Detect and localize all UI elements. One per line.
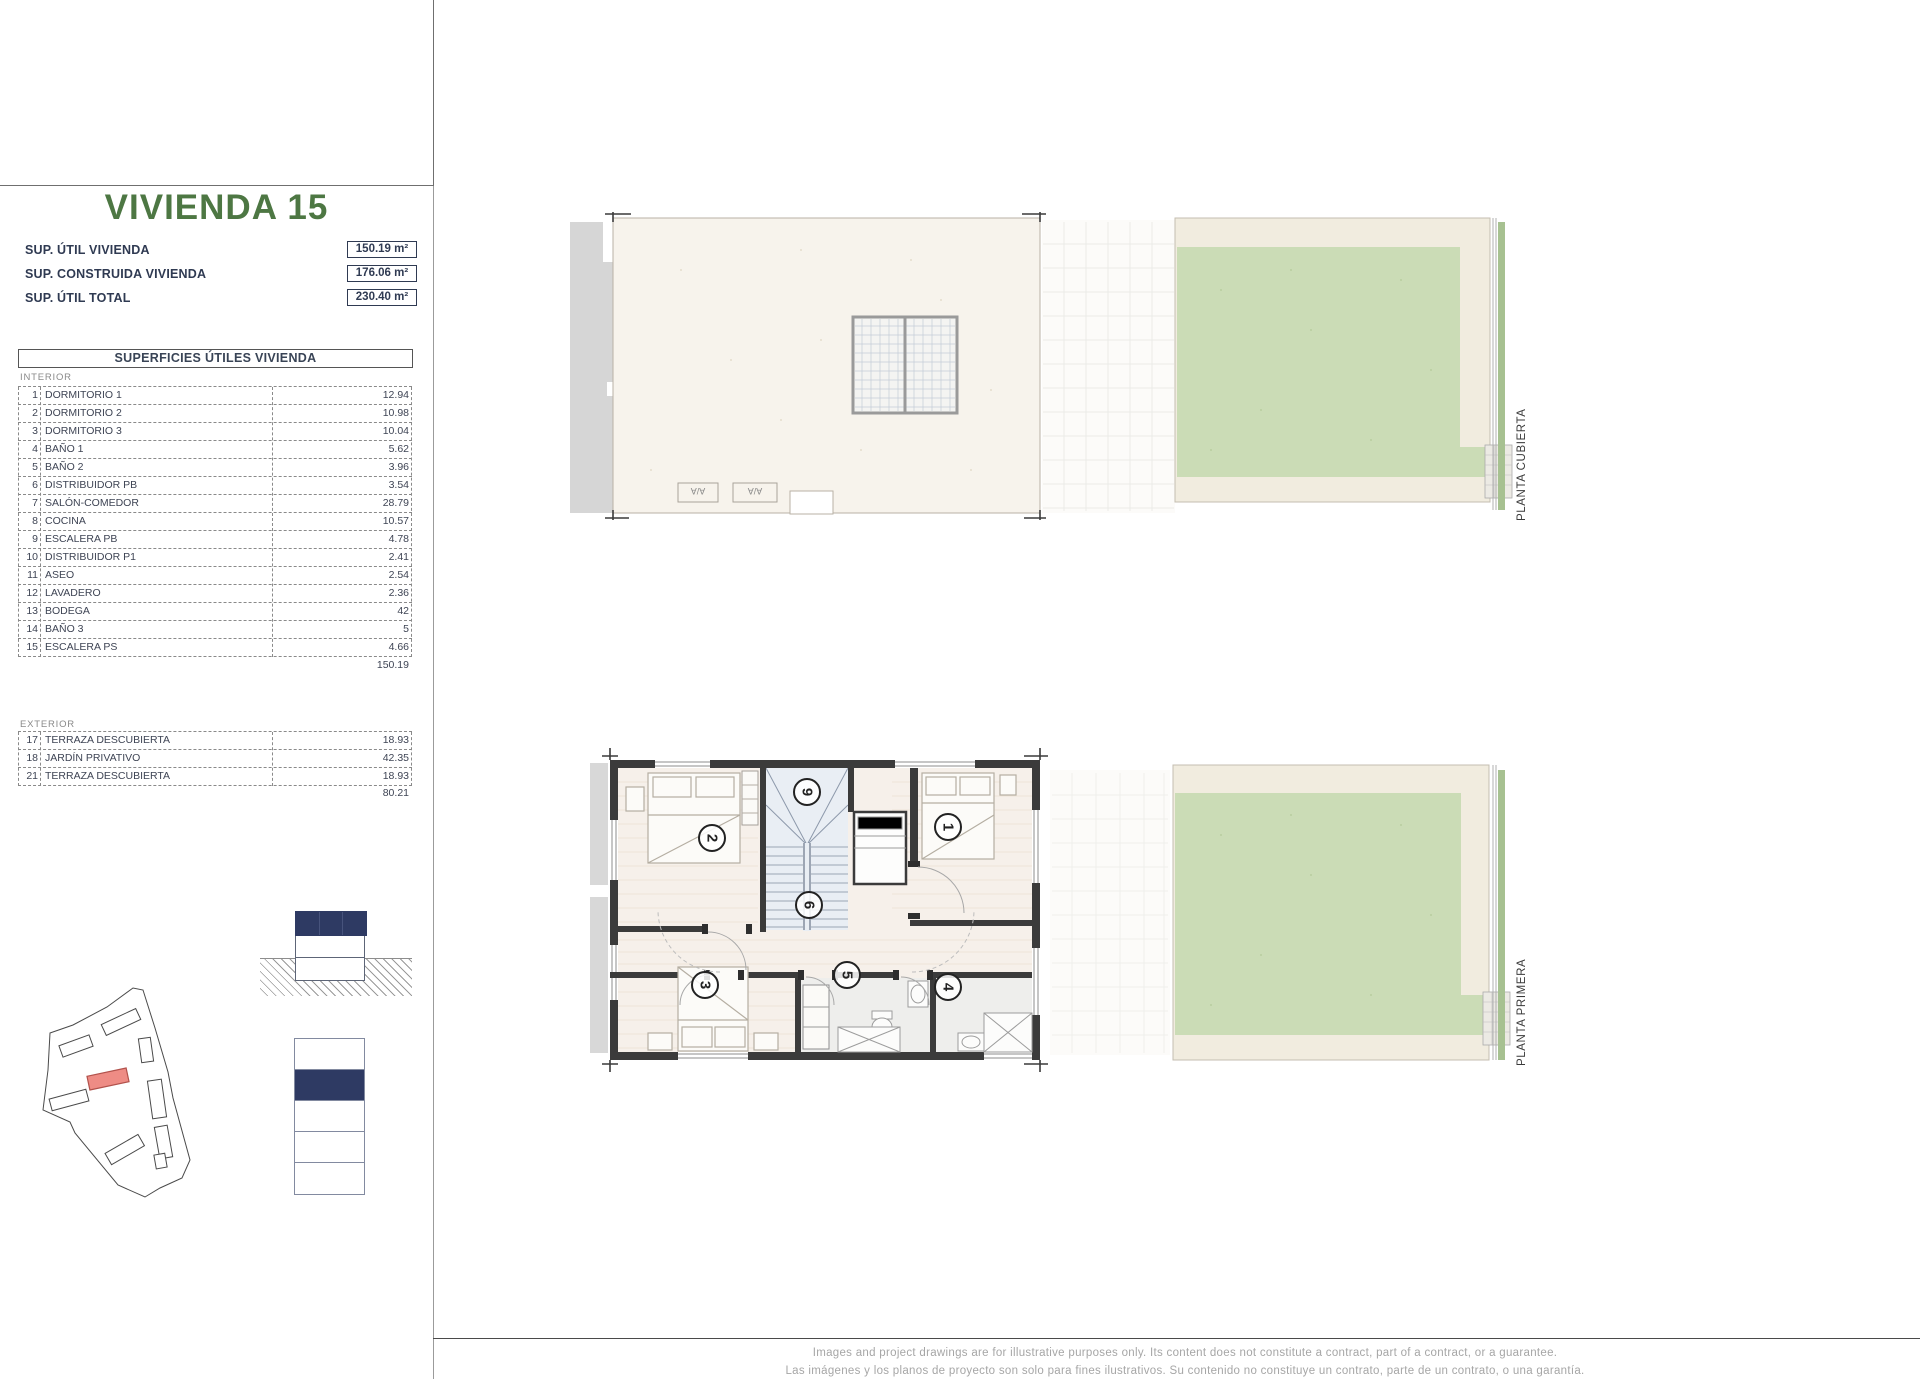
row-value: 18.93 xyxy=(383,732,409,749)
titleblock-vertical-line xyxy=(433,0,434,186)
room-bubble-dormitorio3: 3 xyxy=(692,972,718,998)
row-number: 17 xyxy=(18,732,38,749)
row-value: 12.94 xyxy=(383,387,409,404)
nightstand xyxy=(1000,775,1016,795)
row-value: 5.62 xyxy=(389,441,409,458)
row-name: ESCALERA PB xyxy=(45,531,117,548)
floor-plan-planta-cubierta: A/A A/A xyxy=(560,210,1530,525)
row-name: DISTRIBUIDOR PB xyxy=(45,477,137,494)
disclaimer-line-en: Images and project drawings are for illu… xyxy=(460,1344,1910,1362)
summary-value: 176.06 m² xyxy=(347,265,417,282)
table-row: 7SALÓN-COMEDOR28.79 xyxy=(18,495,412,513)
row-name: DORMITORIO 1 xyxy=(45,387,122,404)
row-value: 2.36 xyxy=(389,585,409,602)
svg-text:5: 5 xyxy=(839,971,856,979)
row-name: DORMITORIO 3 xyxy=(45,423,122,440)
plan-label-primera: PLANTA PRIMERA xyxy=(1516,959,1528,1066)
roof-notch xyxy=(790,491,833,514)
row-name: BAÑO 2 xyxy=(45,459,84,476)
room-bubble-dormitorio1: 1 xyxy=(935,814,961,840)
row-name: TERRAZA DESCUBIERTA xyxy=(45,768,170,785)
row-number: 1 xyxy=(18,387,38,404)
nightstand xyxy=(626,787,644,811)
interior-total: 150.19 xyxy=(18,659,409,671)
row-name: BAÑO 1 xyxy=(45,441,84,458)
row-number: 10 xyxy=(18,549,38,566)
summary-label: SUP. ÚTIL VIVIENDA xyxy=(25,243,150,257)
floor-key-row xyxy=(294,1038,365,1071)
bed2-wardrobe xyxy=(742,771,758,825)
titleblock-horizontal-line xyxy=(0,185,434,186)
row-number: 11 xyxy=(18,567,38,584)
row-name: ASEO xyxy=(45,567,74,584)
panel-divider-line xyxy=(433,0,434,1379)
table-row: 6DISTRIBUIDOR PB3.54 xyxy=(18,477,412,495)
row-value: 3.96 xyxy=(389,459,409,476)
row-name: LAVADERO xyxy=(45,585,101,602)
table-row: 1DORMITORIO 112.94 xyxy=(18,387,412,405)
row-number: 13 xyxy=(18,603,38,620)
private-garden xyxy=(1173,765,1510,1060)
row-number: 15 xyxy=(18,639,38,656)
row-number: 5 xyxy=(18,459,38,476)
row-name: ESCALERA PS xyxy=(45,639,117,656)
row-name: DORMITORIO 2 xyxy=(45,405,122,422)
page-title: VIVIENDA 15 xyxy=(0,188,433,228)
table-row: 8COCINA10.57 xyxy=(18,513,412,531)
table-row: 13BODEGA42 xyxy=(18,603,412,621)
row-value: 2.41 xyxy=(389,549,409,566)
room-bubble-escalera: 9 xyxy=(794,779,820,805)
row-value: 10.98 xyxy=(383,405,409,422)
row-name: DISTRIBUIDOR P1 xyxy=(45,549,136,566)
table-row: 15ESCALERA PS4.66 xyxy=(18,639,412,657)
garden-edge-strip xyxy=(1498,222,1505,510)
row-number: 7 xyxy=(18,495,38,512)
row-name: COCINA xyxy=(45,513,86,530)
exterior-table: 17TERRAZA DESCUBIERTA18.93 18JARDÍN PRIV… xyxy=(18,731,412,786)
interior-table: 1DORMITORIO 112.94 2DORMITORIO 210.98 3D… xyxy=(18,386,412,657)
table-row: 2DORMITORIO 210.98 xyxy=(18,405,412,423)
table-row: 14BAÑO 35 xyxy=(18,621,412,639)
svg-text:1: 1 xyxy=(940,823,957,831)
table-row: 9ESCALERA PB4.78 xyxy=(18,531,412,549)
row-number: 3 xyxy=(18,423,38,440)
garden-green xyxy=(1175,793,1461,1035)
floor-key-row xyxy=(294,1131,365,1164)
table-row: 18JARDÍN PRIVATIVO42.35 xyxy=(18,750,412,768)
exterior-section-label: EXTERIOR xyxy=(20,719,75,730)
ac-label: A/A xyxy=(691,486,706,496)
summary-label: SUP. CONSTRUIDA VIVIENDA xyxy=(25,267,206,281)
row-number: 2 xyxy=(18,405,38,422)
row-value: 2.54 xyxy=(389,567,409,584)
interior-section-label: INTERIOR xyxy=(20,372,72,383)
svg-text:9: 9 xyxy=(799,788,816,796)
row-value: 42.35 xyxy=(383,750,409,767)
row-name: TERRAZA DESCUBIERTA xyxy=(45,732,170,749)
disclaimer: Images and project drawings are for illu… xyxy=(460,1344,1910,1379)
floor-key-row xyxy=(294,1100,365,1133)
exterior-total: 80.21 xyxy=(18,787,409,799)
svg-text:4: 4 xyxy=(940,983,957,992)
ac-label: A/A xyxy=(748,486,763,496)
table-row: 17TERRAZA DESCUBIERTA18.93 xyxy=(18,732,412,750)
svg-text:6: 6 xyxy=(801,901,818,909)
plan-sheet: VIVIENDA 15 SUP. ÚTIL VIVIENDA 150.19 m²… xyxy=(0,0,1920,1379)
room-bubble-bano2: 5 xyxy=(834,962,860,988)
table-row: 10DISTRIBUIDOR P12.41 xyxy=(18,549,412,567)
row-number: 8 xyxy=(18,513,38,530)
room-bubble-bano1: 4 xyxy=(935,974,961,1000)
table-row: 3DORMITORIO 310.04 xyxy=(18,423,412,441)
summary-value: 150.19 m² xyxy=(347,241,417,258)
roof-area xyxy=(613,218,1040,513)
table-row: 4BAÑO 15.62 xyxy=(18,441,412,459)
row-number: 12 xyxy=(18,585,38,602)
site-plan xyxy=(30,975,200,1210)
row-value: 5 xyxy=(403,621,409,638)
disclaimer-line-es: Las imágenes y los planos de proyecto so… xyxy=(460,1362,1910,1379)
nightstand xyxy=(754,1033,778,1050)
room-bubble-distribuidor: 6 xyxy=(796,892,822,918)
nightstand xyxy=(648,1033,672,1050)
table-row: 21TERRAZA DESCUBIERTA18.93 xyxy=(18,768,412,786)
plan-label-cubierta: PLANTA CUBIERTA xyxy=(1516,408,1528,521)
garden-edge-strip xyxy=(1498,770,1505,1060)
section-highlighted-floor xyxy=(295,911,367,936)
row-value: 10.04 xyxy=(383,423,409,440)
garden-green xyxy=(1177,247,1460,477)
svg-text:2: 2 xyxy=(704,834,721,842)
floor-plan-planta-primera: 2 9 1 6 3 5 4 xyxy=(560,715,1530,1075)
summary-label: SUP. ÚTIL TOTAL xyxy=(25,291,131,305)
row-value: 3.54 xyxy=(389,477,409,494)
row-value: 4.66 xyxy=(389,639,409,656)
row-value: 42 xyxy=(397,603,409,620)
row-value: 4.78 xyxy=(389,531,409,548)
skylight xyxy=(853,317,957,413)
section-basement xyxy=(295,957,365,981)
room-bubble-dormitorio2: 2 xyxy=(699,825,725,851)
hall-wardrobe xyxy=(803,985,829,1049)
row-name: JARDÍN PRIVATIVO xyxy=(45,750,140,767)
table-row: 12LAVADERO2.36 xyxy=(18,585,412,603)
svg-text:3: 3 xyxy=(697,981,714,989)
section-ground-floor xyxy=(295,934,365,958)
row-number: 6 xyxy=(18,477,38,494)
row-number: 14 xyxy=(18,621,38,638)
row-number: 21 xyxy=(18,768,38,785)
summary-value: 230.40 m² xyxy=(347,289,417,306)
row-number: 18 xyxy=(18,750,38,767)
row-value: 10.57 xyxy=(383,513,409,530)
table-title: SUPERFICIES ÚTILES VIVIENDA xyxy=(18,349,413,368)
side-strip xyxy=(570,222,613,513)
roof-garden xyxy=(1175,218,1512,502)
footer-rule xyxy=(433,1338,1920,1339)
row-number: 4 xyxy=(18,441,38,458)
row-name: BAÑO 3 xyxy=(45,621,84,638)
row-value: 18.93 xyxy=(383,768,409,785)
floor-key-row xyxy=(294,1162,365,1195)
table-row: 11ASEO2.54 xyxy=(18,567,412,585)
row-number: 9 xyxy=(18,531,38,548)
row-value: 28.79 xyxy=(383,495,409,512)
floor-key-row-highlighted xyxy=(294,1069,365,1102)
row-name: BODEGA xyxy=(45,603,90,620)
row-name: SALÓN-COMEDOR xyxy=(45,495,139,512)
table-row: 5BAÑO 23.96 xyxy=(18,459,412,477)
